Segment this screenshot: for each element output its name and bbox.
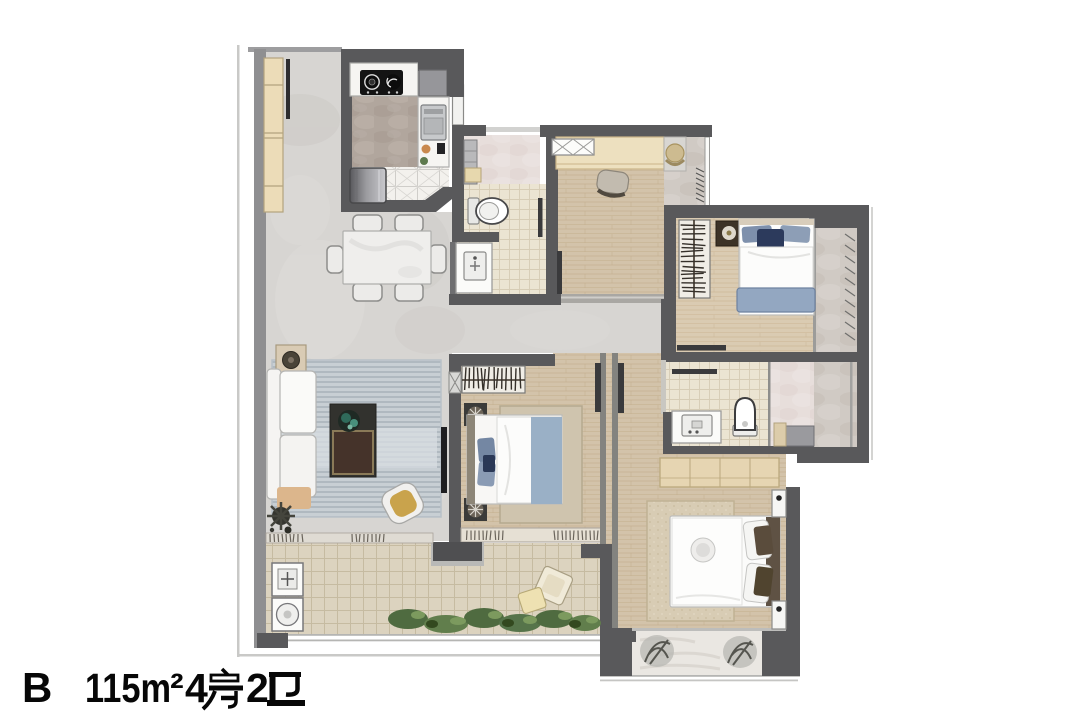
svg-text:²: ² <box>170 665 184 711</box>
svg-text:115m: 115m <box>85 665 171 711</box>
svg-text:2: 2 <box>246 665 269 711</box>
svg-text:4: 4 <box>185 665 208 711</box>
svg-text:B: B <box>22 664 52 711</box>
